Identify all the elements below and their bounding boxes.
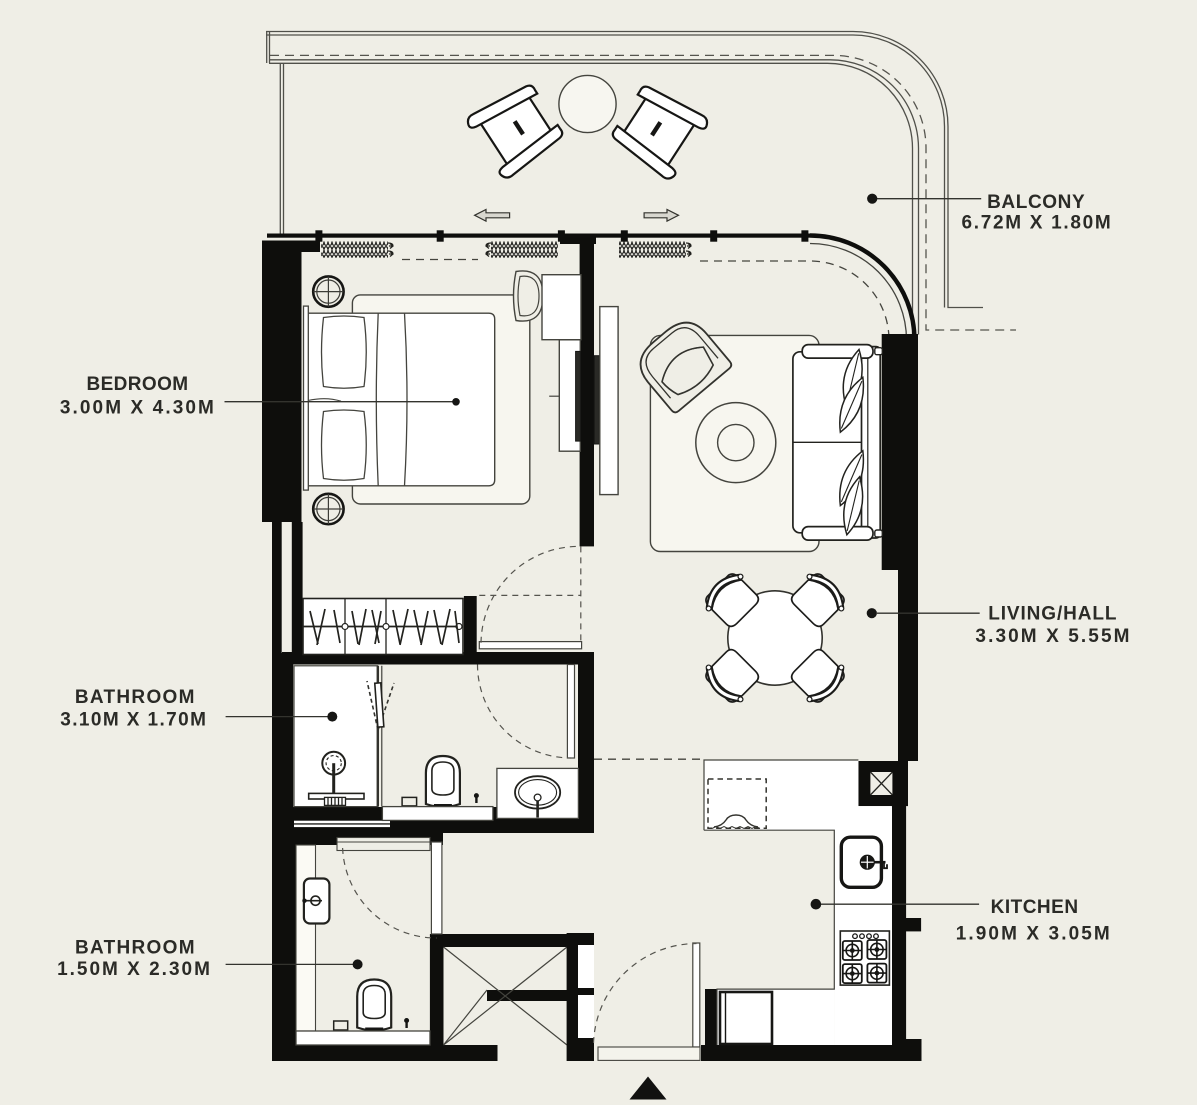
svg-text:1.90M X 3.05M: 1.90M X 3.05M (956, 924, 1112, 945)
svg-text:3.30M X 5.55M: 3.30M X 5.55M (975, 626, 1131, 647)
svg-text:BATHROOM: BATHROOM (75, 687, 196, 708)
svg-text:BATHROOM: BATHROOM (75, 938, 196, 959)
svg-text:6.72M X 1.80M: 6.72M X 1.80M (962, 213, 1113, 234)
svg-text:BEDROOM: BEDROOM (86, 374, 188, 395)
svg-text:1.50M X 2.30M: 1.50M X 2.30M (57, 959, 212, 980)
svg-text:3.10M X 1.70M: 3.10M X 1.70M (60, 710, 207, 731)
svg-text:LIVING/HALL: LIVING/HALL (988, 604, 1117, 625)
svg-text:BALCONY: BALCONY (987, 192, 1085, 213)
svg-text:3.00M X 4.30M: 3.00M X 4.30M (60, 398, 216, 419)
svg-text:KITCHEN: KITCHEN (991, 897, 1079, 918)
